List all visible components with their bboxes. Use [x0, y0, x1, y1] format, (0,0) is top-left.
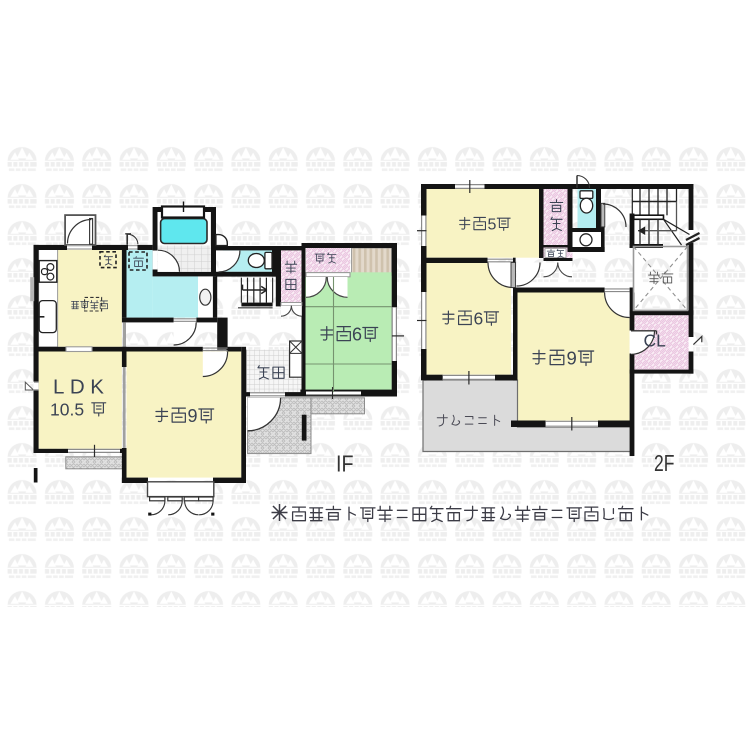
- svg-text:5: 5: [488, 217, 497, 234]
- svg-text:2F: 2F: [654, 450, 675, 476]
- svg-text:CL: CL: [644, 331, 667, 351]
- svg-text:6: 6: [474, 309, 484, 329]
- svg-text:IF: IF: [336, 451, 354, 477]
- svg-text:LDK: LDK: [53, 376, 109, 399]
- svg-text:9: 9: [567, 348, 577, 369]
- svg-text:9: 9: [188, 406, 198, 426]
- svg-text:10.5: 10.5: [50, 400, 84, 420]
- svg-text:6: 6: [352, 325, 362, 345]
